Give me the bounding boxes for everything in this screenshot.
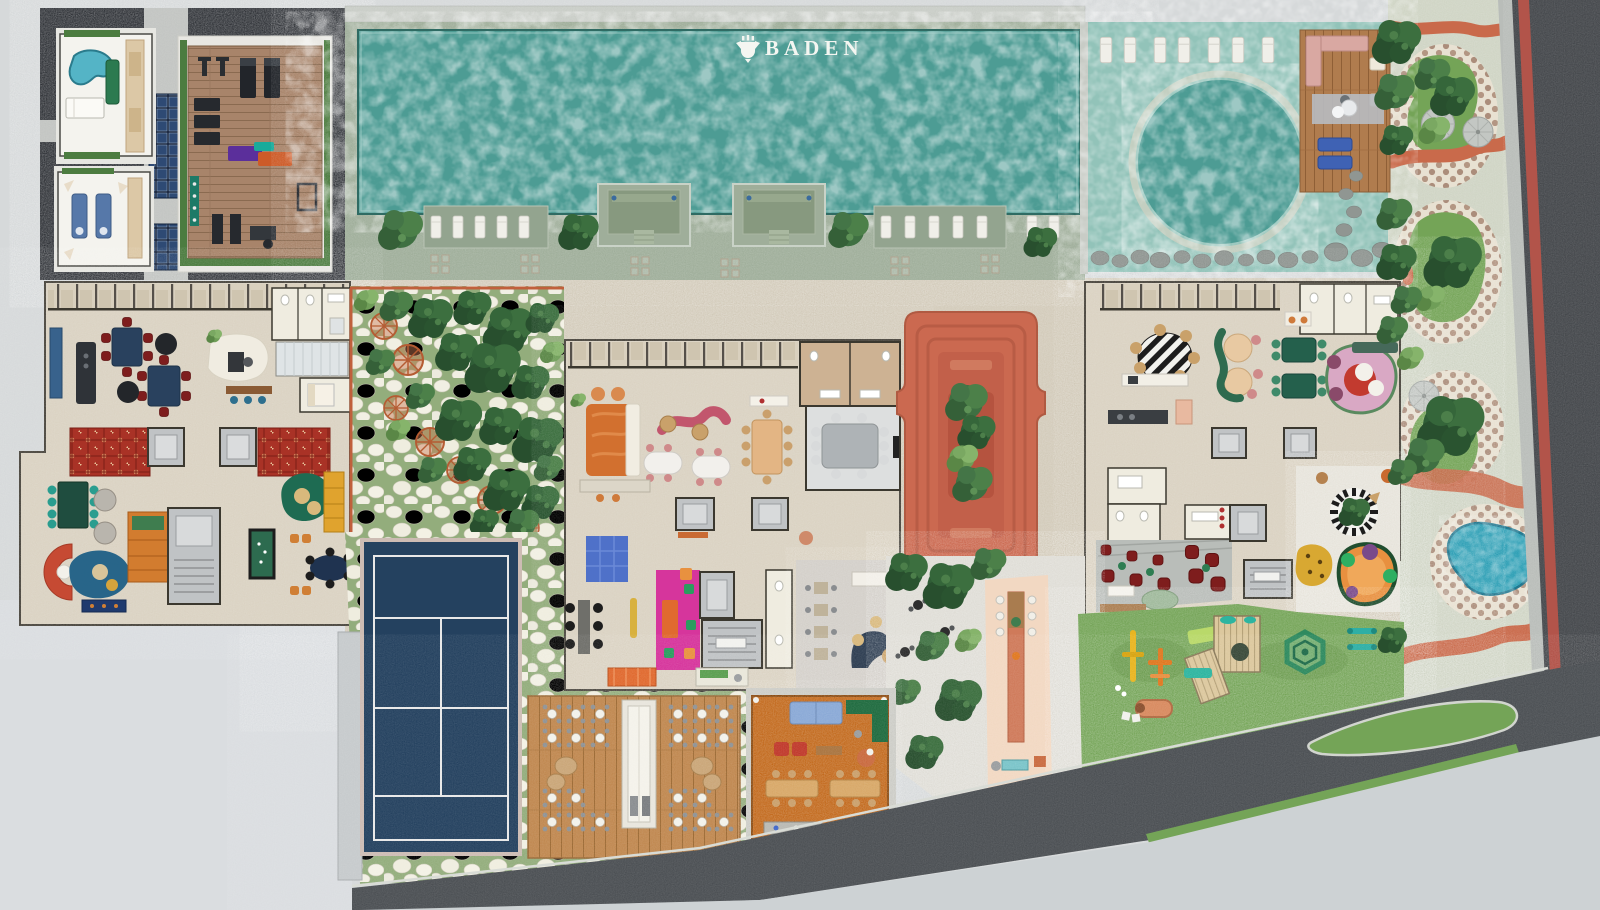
picnic-blanket [1121, 711, 1130, 720]
decor [867, 749, 874, 756]
pool-lounger [519, 216, 529, 238]
water-caustics [358, 30, 1080, 214]
kitchen-island [76, 342, 96, 404]
sunken-pool-platform [733, 184, 825, 246]
cushion [680, 568, 692, 580]
exercise-mat [194, 98, 220, 111]
pool-lounger [1100, 37, 1112, 62]
stool [258, 396, 266, 404]
spa-pavilion-plunge [56, 28, 156, 164]
pouf-yellow [106, 579, 118, 591]
dining-table [766, 780, 818, 797]
round-plunge-pool-zone [1080, 22, 1392, 274]
sink [860, 390, 880, 398]
treadmill-console [264, 58, 280, 66]
patterned-rug [70, 428, 150, 476]
service-cart [1108, 586, 1134, 596]
elevator-cab [707, 580, 727, 610]
bar-stool [996, 628, 1004, 636]
climber-bar [1150, 674, 1170, 678]
stair-core [1244, 560, 1292, 598]
outdoor-sofa [1306, 36, 1321, 86]
teen-lounge [656, 568, 700, 670]
pool-lounger [1262, 37, 1274, 62]
treadmill-console [240, 58, 256, 66]
armchair-red [792, 742, 807, 756]
marble-table [692, 456, 730, 478]
toilet [810, 351, 818, 361]
stool [244, 396, 252, 404]
cushion [684, 648, 695, 659]
bar-stool [1028, 628, 1036, 636]
cafe-table [814, 582, 828, 594]
bar-kiosk [985, 575, 1052, 795]
weight-plate [263, 239, 273, 249]
elevator-cab [1238, 512, 1258, 534]
round-table [117, 381, 139, 403]
pouf [94, 522, 116, 544]
pool-lounger [475, 216, 485, 238]
forest-garden-hammocks [350, 286, 565, 539]
tennis-court [338, 540, 520, 880]
stool [596, 494, 604, 502]
pool-lounger [497, 216, 507, 238]
cafe-table [814, 604, 828, 616]
elevator-cab [683, 504, 707, 524]
bench [128, 178, 142, 258]
stair-core [702, 620, 762, 668]
play-base-teal [1184, 668, 1212, 678]
picnic-blanket [1131, 713, 1140, 722]
hammock-net [393, 345, 423, 375]
clubhouse-center-wing [565, 340, 900, 690]
chair-orange [290, 534, 299, 543]
massage-bed-pillow [76, 227, 84, 235]
cafe-table [814, 626, 828, 638]
wood-stool [1316, 472, 1328, 484]
study-room [1185, 505, 1231, 539]
bar-plant [1011, 617, 1021, 627]
platform-bench [612, 194, 676, 202]
hedge [64, 30, 120, 37]
restrooms [1108, 504, 1160, 544]
pool-lounger [929, 216, 939, 238]
divider-wall [1080, 22, 1088, 274]
beverage-cart [1002, 760, 1028, 770]
coffee-machine [1128, 376, 1138, 384]
elevator-cab [227, 435, 249, 459]
water-caustics [1138, 80, 1302, 244]
bar-stool [1028, 596, 1036, 604]
climber-bar [1148, 660, 1172, 665]
hexagon-climber [1287, 632, 1323, 672]
toilet [306, 295, 314, 305]
crate [1034, 756, 1046, 767]
elevator-cab [759, 504, 781, 524]
play-dot [1341, 553, 1355, 567]
bar-sink [630, 796, 638, 816]
kettle-grill [991, 761, 1001, 771]
play-pad [1244, 617, 1256, 624]
sauna-bench-seat [129, 52, 141, 76]
seat-cushion [672, 196, 677, 201]
storage-closets [1100, 284, 1280, 310]
toilet [882, 351, 890, 361]
wellness-spa-zone [40, 8, 345, 280]
cushion [664, 648, 674, 658]
sauna-bench-seat [129, 108, 141, 132]
coffee-table [1332, 106, 1344, 118]
toilet [1116, 511, 1124, 521]
toilet [1140, 511, 1148, 521]
pool-lounger [1124, 37, 1136, 62]
elevator-cab [176, 516, 212, 546]
console [750, 396, 788, 406]
boundary-wall [345, 6, 1085, 22]
work-desk [228, 352, 244, 372]
cushion [684, 584, 694, 594]
fitness-deck [178, 36, 332, 272]
access-ramp [338, 632, 362, 880]
hedge [324, 40, 330, 260]
pool-table [250, 530, 274, 578]
pouf [294, 488, 310, 504]
hammock-net [384, 396, 408, 420]
platform-steps [634, 230, 654, 244]
dining-chair [102, 334, 111, 343]
stool [230, 396, 238, 404]
play-ball [1115, 685, 1121, 691]
spa-pavilion-massage [54, 166, 154, 272]
toilet [775, 581, 783, 591]
climber-orange [1158, 648, 1163, 686]
cabinet-peach [1176, 400, 1192, 424]
bar-stool [1028, 612, 1036, 620]
lounge-chair [799, 531, 813, 545]
shower [330, 318, 344, 334]
cushion [686, 620, 696, 630]
orange-awning-kiosk [608, 668, 656, 686]
massage-table [106, 60, 119, 104]
exercise-mat [194, 132, 220, 145]
outdoor-bar-plaza [885, 548, 1085, 802]
planter [700, 670, 728, 678]
rattan-pouf [691, 757, 713, 775]
leg-press [250, 226, 276, 240]
stair-landing [716, 638, 746, 648]
armchair [591, 387, 605, 401]
patio-umbrella [1463, 117, 1493, 147]
console-counter [226, 386, 272, 394]
bistro-deck [528, 696, 740, 858]
column [753, 697, 759, 703]
pouf [94, 489, 116, 511]
dining-table [148, 366, 180, 406]
pool-lounger [431, 216, 441, 238]
platform-bench [747, 194, 811, 202]
blue-cabinet [50, 328, 62, 398]
kids-splash-pad [1339, 544, 1397, 604]
sink [820, 390, 840, 398]
conference-table [822, 424, 878, 468]
bar-sink [642, 796, 650, 816]
bar-stool [996, 612, 1004, 620]
storage-closets [568, 342, 798, 368]
dining-table [1282, 374, 1316, 398]
stool [612, 494, 620, 502]
sofa-green [1352, 342, 1398, 353]
coffee-table [816, 746, 842, 755]
dining-table [112, 328, 142, 366]
toilet [775, 635, 783, 645]
stone-table [1142, 590, 1178, 610]
stair-landing [1254, 572, 1280, 581]
exercise-mat [194, 115, 220, 128]
pool-lounger [1178, 37, 1190, 62]
rattan-pouf [547, 774, 565, 790]
main-lap-pool-zone: BADEN [345, 6, 1085, 280]
desk [1192, 512, 1218, 521]
hedge [180, 258, 330, 266]
yoga-mat-teal [254, 142, 274, 151]
wine-terrace [1096, 540, 1232, 612]
pool-lounger [453, 216, 463, 238]
cable-station [220, 60, 225, 76]
pouf [307, 501, 321, 515]
meeting-room [806, 406, 900, 490]
elevator-cab [155, 435, 177, 459]
side-table-green [1202, 564, 1210, 572]
bench [950, 360, 992, 370]
cafe-table [814, 648, 828, 660]
pool-lounger [1154, 37, 1166, 62]
weight-bench [212, 214, 223, 244]
marble-table [644, 452, 682, 474]
pool-lounger [953, 216, 963, 238]
pool-lounger [977, 216, 987, 238]
patterned-rug [258, 428, 330, 476]
bench-orange [678, 532, 708, 538]
elevator-cab [1291, 434, 1309, 452]
cable-station-bar [198, 57, 211, 61]
dining-table [1282, 338, 1316, 362]
chair-orange [302, 534, 311, 543]
pool-lounger [905, 216, 915, 238]
roof-opening [1231, 643, 1249, 661]
southwest-concrete-apron [0, 600, 352, 910]
wall [568, 366, 798, 369]
hedge [62, 168, 114, 174]
dining-table [752, 420, 782, 474]
rattan-chair [692, 424, 708, 440]
play-dot [1383, 569, 1397, 583]
yoga-mat-orange [258, 152, 292, 166]
garden-cart-station [696, 668, 748, 686]
elevator-cab [1219, 434, 1239, 452]
seat-cushion [612, 196, 617, 201]
chair-orange [302, 586, 311, 595]
play-mat-blue [586, 536, 628, 582]
log-tunnel [1135, 700, 1172, 717]
sofa-orange [662, 600, 678, 638]
desk-chair [243, 357, 253, 367]
rattan-pouf [703, 774, 721, 790]
shelf-top [132, 516, 164, 530]
weight-bench [230, 214, 241, 244]
side-table-green [1146, 568, 1154, 576]
dining-table [830, 780, 880, 797]
sunken-pool-platform [598, 184, 690, 246]
round-table [1224, 334, 1252, 362]
site-plan-svg: BADEN [0, 0, 1600, 910]
tv-screen [893, 436, 899, 458]
games-table [58, 482, 88, 528]
play-dot [1346, 586, 1358, 598]
bar-decor [1012, 652, 1020, 660]
toilet [281, 295, 289, 305]
side-table-green [1118, 562, 1126, 570]
daybed [66, 98, 104, 118]
sun-lounger-blue [1318, 156, 1352, 169]
rattan-pouf [555, 757, 577, 775]
counter [1118, 476, 1142, 488]
pool-lounger [1208, 37, 1220, 62]
kitchenette-counter [580, 480, 650, 492]
armchair-plum [1327, 355, 1341, 369]
kids-courtyard [1296, 466, 1400, 612]
pool-lounger [881, 216, 891, 238]
sun-lounger-blue [1318, 138, 1352, 151]
armchair-red [774, 742, 789, 756]
clubhouse-west-wing [20, 282, 353, 625]
rattan-chair [660, 416, 676, 432]
armchair [611, 387, 625, 401]
sofa-green-l [872, 700, 888, 742]
round-table [155, 333, 177, 355]
stool [852, 634, 864, 646]
seesaw-bar [1122, 652, 1144, 657]
seat-cushion [747, 196, 752, 201]
masterplan-rendering: BADEN [0, 0, 1600, 910]
brand-logo-text: BADEN [765, 36, 864, 60]
round-table [92, 564, 108, 580]
toilet [1344, 293, 1352, 303]
chair-orange [290, 586, 299, 595]
clubhouse-east-wing [1085, 282, 1400, 620]
shelf-yellow [324, 472, 344, 532]
study-desk [578, 600, 590, 654]
stool [870, 616, 882, 628]
pool-lounger [1232, 37, 1244, 62]
seat-cushion [807, 196, 812, 201]
play-ball [1122, 692, 1127, 697]
hedge [180, 40, 187, 264]
armchair-plum [1329, 387, 1343, 401]
lounger-bay [424, 206, 548, 248]
bench [950, 528, 992, 538]
platform-steps [769, 230, 789, 244]
sink [328, 294, 344, 302]
stool [854, 730, 862, 738]
play-dot [1362, 544, 1378, 560]
toilet [1310, 293, 1318, 303]
pouf-white [1368, 380, 1384, 396]
sofa-white [626, 404, 640, 476]
cable-station-bar [216, 57, 229, 61]
pouf-white [1355, 363, 1373, 381]
family-lounge [1327, 342, 1398, 413]
bar-stool [996, 596, 1004, 604]
play-pad [1220, 616, 1236, 624]
wall [1100, 308, 1280, 311]
cable-station [202, 60, 207, 76]
bed-pillows [308, 384, 315, 406]
bolster-yellow [630, 598, 637, 638]
sink [1374, 296, 1390, 304]
hedge [64, 152, 120, 159]
massage-bed-pillow [100, 227, 108, 235]
side-table [57, 565, 71, 579]
